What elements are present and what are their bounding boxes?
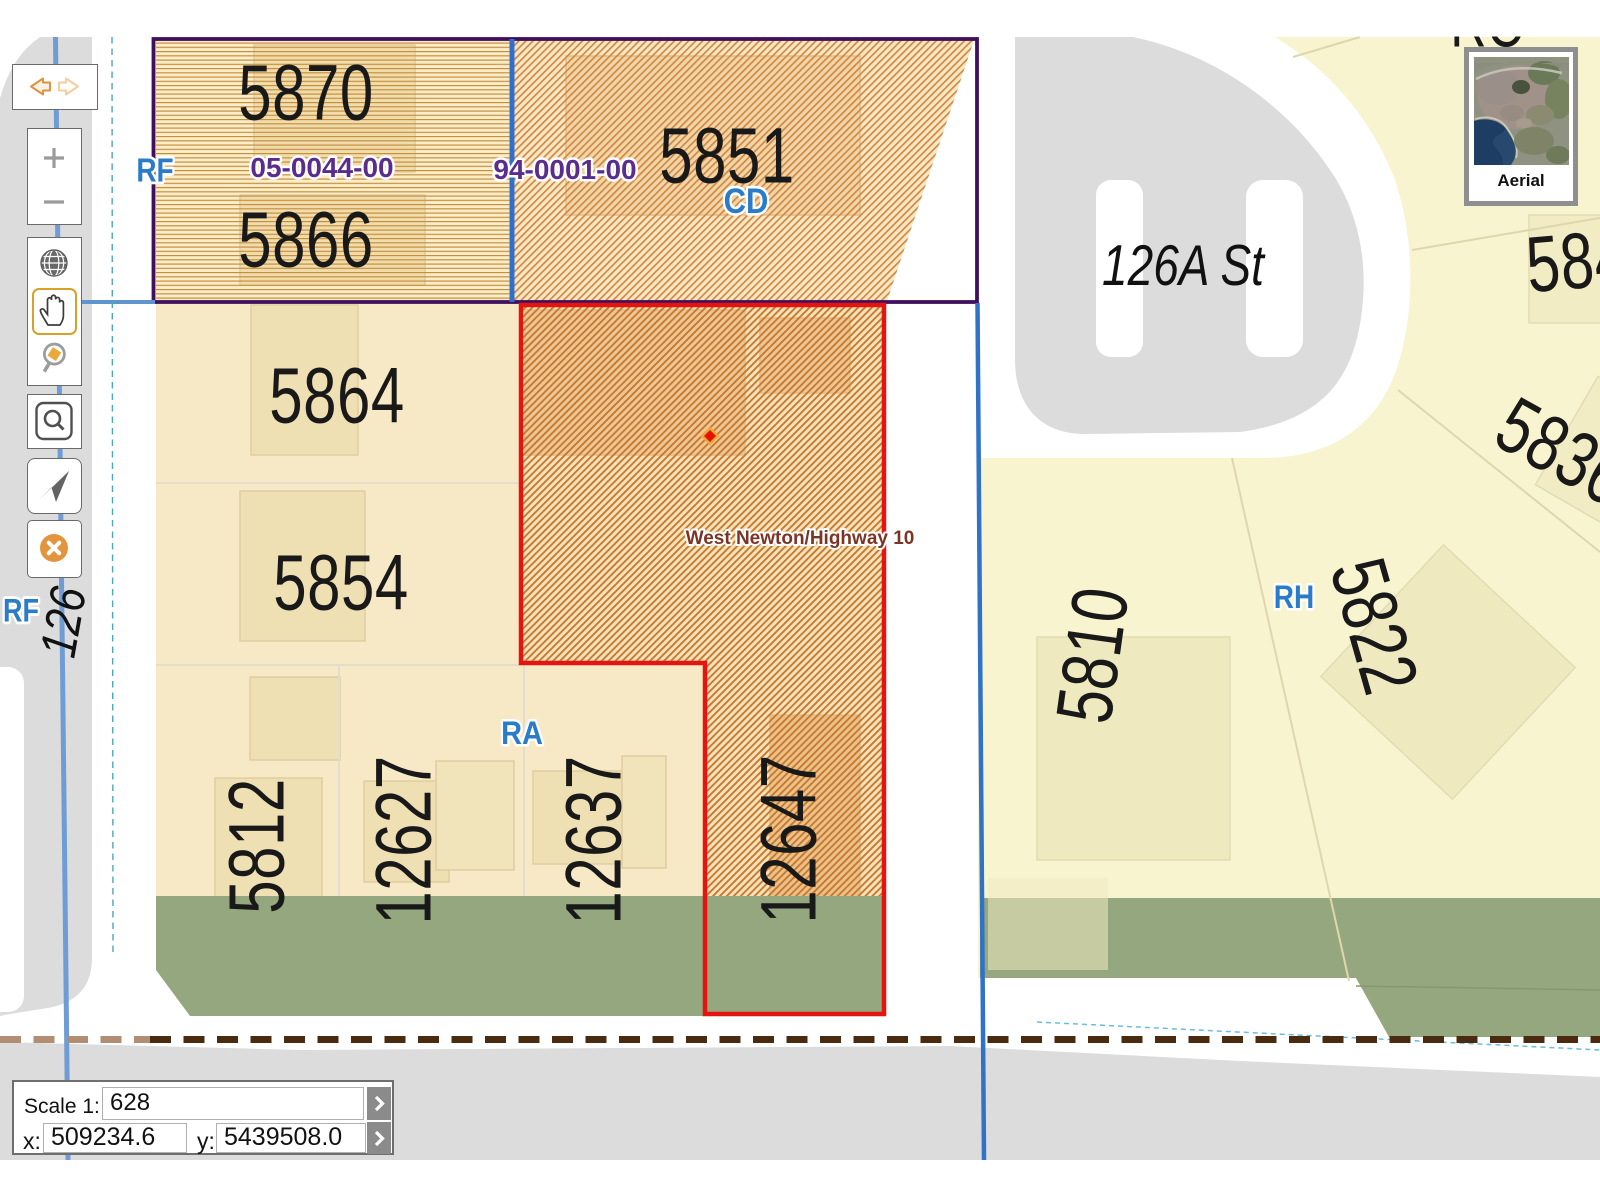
svg-text:05-0044-00: 05-0044-00 [250, 152, 393, 183]
svg-text:12627: 12627 [358, 755, 447, 924]
svg-text:126A St: 126A St [1102, 234, 1266, 298]
svg-text:RF: RF [136, 151, 173, 189]
svg-text:West Newton/Highway 10: West Newton/Highway 10 [686, 528, 915, 549]
svg-text:5840: 5840 [1523, 209, 1600, 310]
svg-text:CD: CD [724, 182, 769, 221]
svg-text:RH: RH [1274, 580, 1314, 615]
svg-text:5810: 5810 [1038, 582, 1145, 729]
svg-text:RA: RA [501, 715, 543, 752]
svg-text:5864: 5864 [269, 350, 404, 439]
svg-text:12647: 12647 [743, 754, 832, 923]
svg-text:5870: 5870 [238, 47, 373, 136]
svg-text:12637: 12637 [548, 755, 637, 924]
svg-text:94-0001-00: 94-0001-00 [493, 154, 636, 185]
svg-text:5866: 5866 [238, 194, 373, 283]
svg-text:126: 126 [29, 582, 97, 661]
svg-text:5854: 5854 [273, 537, 408, 626]
svg-text:5812: 5812 [211, 778, 300, 913]
